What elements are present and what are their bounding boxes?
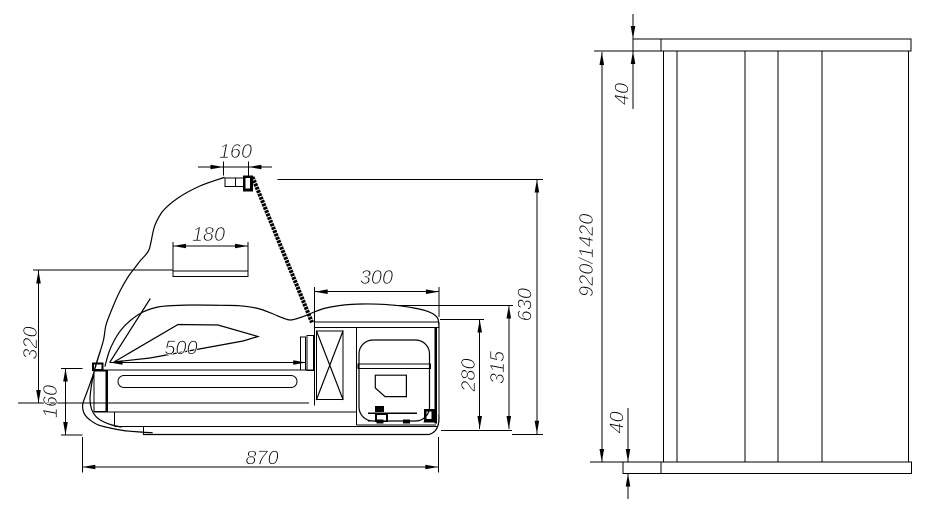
svg-text:870: 870 xyxy=(245,448,278,470)
svg-text:40: 40 xyxy=(612,83,634,105)
svg-text:315: 315 xyxy=(487,350,509,384)
svg-text:630: 630 xyxy=(515,288,537,321)
svg-text:180: 180 xyxy=(192,224,225,246)
svg-text:160: 160 xyxy=(219,141,252,163)
svg-text:920/1420: 920/1420 xyxy=(576,214,598,297)
svg-text:500: 500 xyxy=(164,338,197,360)
svg-text:280: 280 xyxy=(458,358,480,392)
svg-text:300: 300 xyxy=(360,267,393,289)
svg-text:160: 160 xyxy=(40,385,62,418)
svg-text:320: 320 xyxy=(20,326,42,359)
svg-text:40: 40 xyxy=(607,411,629,433)
